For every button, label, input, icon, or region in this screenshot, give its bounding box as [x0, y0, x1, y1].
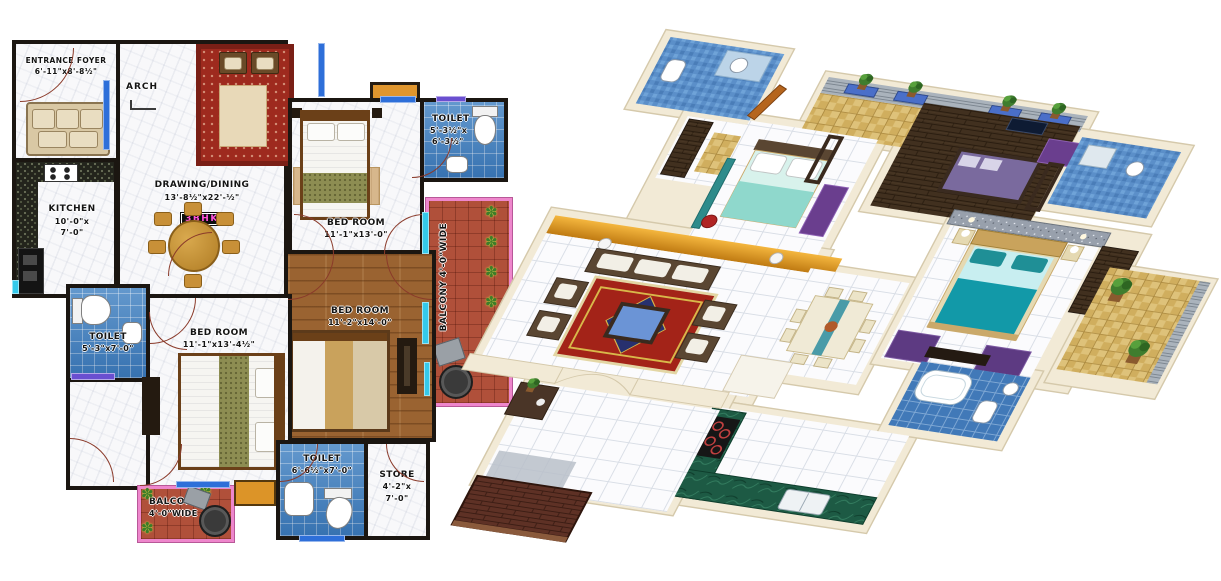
arch-symbol — [130, 100, 156, 110]
room-dims: 7'-0" — [368, 494, 426, 504]
bed — [290, 330, 390, 432]
room-label: KITCHEN — [30, 204, 114, 215]
room-label: DRAWING/DINING — [120, 180, 284, 191]
window — [422, 302, 429, 344]
window — [71, 373, 115, 380]
floorplan-composite: ENTRANCE FOYER 6'-11"x8'-8½" KITCHEN 10'… — [0, 0, 1221, 581]
room-dims: 5'-3"x7'-0" — [70, 344, 146, 354]
pillow — [337, 123, 365, 141]
fridge-detail — [23, 271, 37, 281]
bed — [300, 110, 370, 220]
room-dims: 10'-0"x — [30, 217, 114, 227]
room-label: TOILET — [70, 332, 146, 343]
carpet-center — [219, 85, 267, 147]
blanket — [303, 173, 367, 203]
dining-chair — [216, 212, 234, 226]
carpet — [196, 44, 294, 166]
tv-unit — [397, 338, 417, 394]
wardrobe — [142, 377, 160, 435]
armchair — [219, 52, 247, 74]
plant-icon: ✽ — [141, 521, 154, 536]
room-label: BED ROOM — [288, 306, 432, 317]
arch-label: ARCH — [126, 82, 158, 93]
headboard — [303, 113, 367, 121]
window — [380, 96, 416, 103]
sofa-cushion — [32, 109, 55, 129]
room-dims: 4'-2"x — [368, 482, 426, 492]
sofa-cushion — [80, 109, 103, 129]
toilet-icon — [323, 494, 356, 531]
sofa-cushion — [38, 131, 67, 148]
bed — [178, 353, 285, 470]
window — [422, 212, 429, 254]
toilet-icon — [81, 295, 111, 325]
washbasin-icon — [284, 482, 314, 516]
room-dims: 7'-0" — [30, 228, 114, 238]
sofa-cushion — [69, 131, 98, 148]
dining-chair — [222, 240, 240, 254]
room-dims: 11'-2"x14'-0" — [288, 318, 432, 328]
dining-chair — [148, 240, 166, 254]
window — [12, 280, 19, 294]
armchair — [251, 52, 279, 74]
tv-detail — [404, 346, 410, 386]
fridge-icon — [18, 248, 44, 294]
blanket — [219, 356, 249, 467]
window — [424, 362, 430, 396]
side-table — [372, 108, 382, 118]
balcony-table — [199, 505, 231, 537]
room-balcony-bottom: BALCONY 4'-0"WIDE ✽ ✽ ✽ — [138, 486, 234, 542]
dining-chair — [154, 212, 172, 226]
glass-partition — [318, 43, 325, 97]
plant-icon: ✽ — [141, 487, 154, 502]
window — [299, 535, 345, 542]
plan-3d — [450, 25, 1221, 581]
room-dims: 4'-0"WIDE — [149, 509, 198, 519]
room-dims: 13'-8½"x22'-½" — [120, 193, 284, 203]
wardrobe-unit — [234, 480, 276, 506]
sofa-cushion — [56, 109, 79, 129]
stove-icon — [44, 164, 78, 182]
room-label: BALCONY 4'-0"WIDE — [439, 223, 450, 331]
sofa — [26, 102, 110, 156]
dining-chair — [184, 202, 202, 216]
pillow — [307, 123, 335, 141]
headboard — [293, 333, 387, 341]
room-toilet-mid: TOILET 5'-3"x7'-0" — [66, 284, 150, 382]
fridge-detail — [23, 255, 37, 265]
room-kitchen: KITCHEN 10'-0"x 7'-0" — [12, 158, 118, 298]
dining-chair — [184, 274, 202, 288]
window — [176, 481, 230, 488]
plan-2d: ENTRANCE FOYER 6'-11"x8'-8½" KITCHEN 10'… — [12, 40, 514, 548]
glass-partition — [103, 80, 110, 150]
